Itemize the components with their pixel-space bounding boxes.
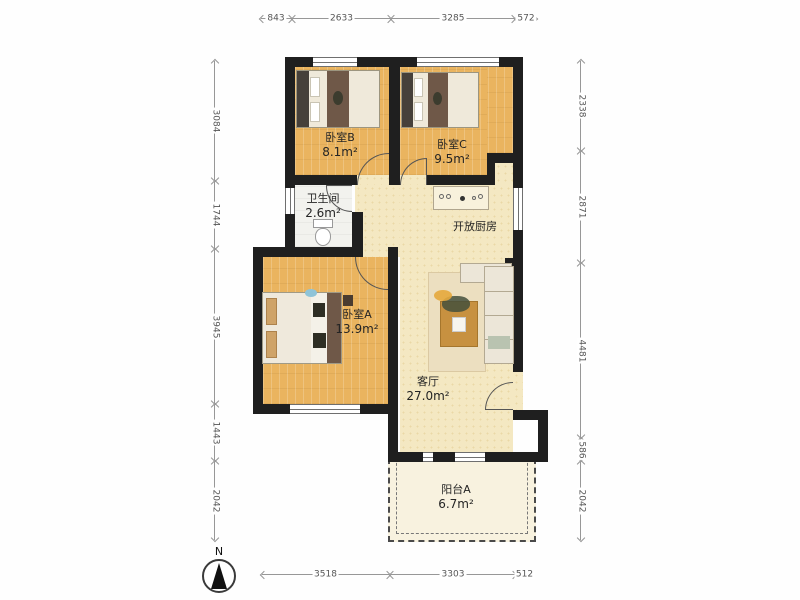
pillow	[266, 298, 277, 325]
dim-bottom-3303: 3303	[390, 568, 516, 580]
pillow	[310, 77, 320, 97]
wall-bedroom-b-bottom	[285, 175, 357, 185]
dim-top-3285: 3285	[391, 12, 515, 24]
dim-right-2338: 2338	[574, 60, 586, 151]
bed-bedroom-b	[296, 70, 380, 128]
wall-bedroom-a-right	[388, 247, 398, 462]
pillow	[266, 331, 277, 358]
dim-right-4481: 4481	[574, 263, 586, 438]
decor-plant-icon	[313, 333, 326, 348]
sofa-cushion-line	[485, 291, 513, 292]
floor-plan-canvas: 卧室B 8.1m² 卧室C 9.5m² 卫生间 2.6m² 开放厨房 卧室A 1…	[0, 0, 800, 600]
room-name: 卧室C	[434, 138, 470, 152]
decor-blue-icon	[305, 289, 317, 297]
dim-left-3945: 3945	[208, 249, 220, 404]
stove-burner-icon	[446, 194, 451, 199]
dim-left-2042: 2042	[208, 461, 220, 541]
dim-right-2871: 2871	[574, 151, 586, 263]
wall-bedroom-a-top	[253, 247, 355, 257]
dim-right-2042: 2042	[574, 461, 586, 541]
wall-bedroom-c-bottom	[427, 175, 495, 185]
sofa-cushion-line	[485, 315, 513, 316]
room-area: 8.1m²	[322, 145, 358, 161]
bed-headboard	[297, 71, 309, 127]
kitchen-counter	[433, 186, 489, 210]
bed-headboard	[402, 73, 413, 127]
dim-right-586: 586	[574, 438, 586, 461]
dim-bottom-512: 512	[516, 568, 533, 580]
wall-divider-bc	[389, 57, 400, 185]
pillow	[310, 102, 320, 122]
window-balcony-2	[455, 452, 485, 462]
dim-top-2633: 2633	[292, 12, 391, 24]
label-bedroom-a: 卧室A 13.9m²	[335, 308, 378, 338]
pillow	[414, 78, 423, 97]
room-area: 9.5m²	[434, 152, 470, 168]
room-name: 卧室B	[322, 131, 358, 145]
room-name: 开放厨房	[453, 220, 497, 234]
window-bedroom-a	[290, 404, 360, 414]
label-balcony: 阳台A 6.7m²	[438, 483, 474, 513]
dim-left-3084: 3084	[208, 60, 220, 181]
stove-burner-icon	[439, 194, 444, 199]
dim-top-572: 572	[515, 12, 537, 24]
window-bedroom-b	[313, 57, 357, 67]
room-area: 27.0m²	[406, 389, 449, 405]
floor-door-gap	[513, 372, 523, 412]
room-area: 2.6m²	[305, 206, 341, 222]
pillow	[414, 102, 423, 121]
duvet-ornament	[333, 91, 343, 105]
door-leaf-entrance	[485, 409, 513, 410]
room-name: 卧室A	[335, 308, 378, 322]
room-area: 6.7m²	[438, 497, 474, 513]
dim-left-1443: 1443	[208, 404, 220, 461]
sofa	[484, 266, 514, 364]
duvet-ornament	[433, 92, 442, 105]
window-balcony-1	[423, 452, 433, 462]
label-living-room: 客厅 27.0m²	[406, 375, 449, 405]
sink-drain-icon	[460, 196, 465, 201]
table-tray	[452, 317, 466, 332]
bed-bedroom-c	[401, 72, 479, 128]
label-bathroom: 卫生间 2.6m²	[305, 192, 341, 222]
bed-bedroom-a	[262, 292, 342, 364]
room-name: 卫生间	[305, 192, 341, 206]
wall-left-upper	[285, 57, 295, 257]
dim-left-1744: 1744	[208, 181, 220, 249]
label-bedroom-b: 卧室B 8.1m²	[322, 131, 358, 161]
window-bathroom	[285, 188, 295, 214]
nightstand	[343, 295, 353, 306]
dim-top-843: 843	[260, 12, 292, 24]
room-name: 客厅	[406, 375, 449, 389]
room-area: 13.9m²	[335, 322, 378, 338]
faucet-icon	[472, 196, 476, 200]
dim-bottom-3518: 3518	[261, 568, 390, 580]
faucet-icon	[478, 194, 483, 199]
window-bedroom-c	[417, 57, 499, 67]
sofa-throw	[488, 336, 510, 349]
door-leaf-bathroom	[326, 185, 352, 186]
flowers-icon	[434, 290, 452, 301]
toilet-bowl	[315, 228, 331, 246]
label-bedroom-c: 卧室C 9.5m²	[434, 138, 470, 168]
compass-needle-icon	[211, 563, 227, 589]
label-kitchen: 开放厨房	[453, 220, 497, 234]
room-name: 阳台A	[438, 483, 474, 497]
decor-lamp-icon	[313, 303, 325, 317]
window-kitchen	[513, 188, 523, 230]
compass-north-label: N	[215, 545, 223, 558]
door-leaf-bedroom-c	[426, 158, 427, 185]
